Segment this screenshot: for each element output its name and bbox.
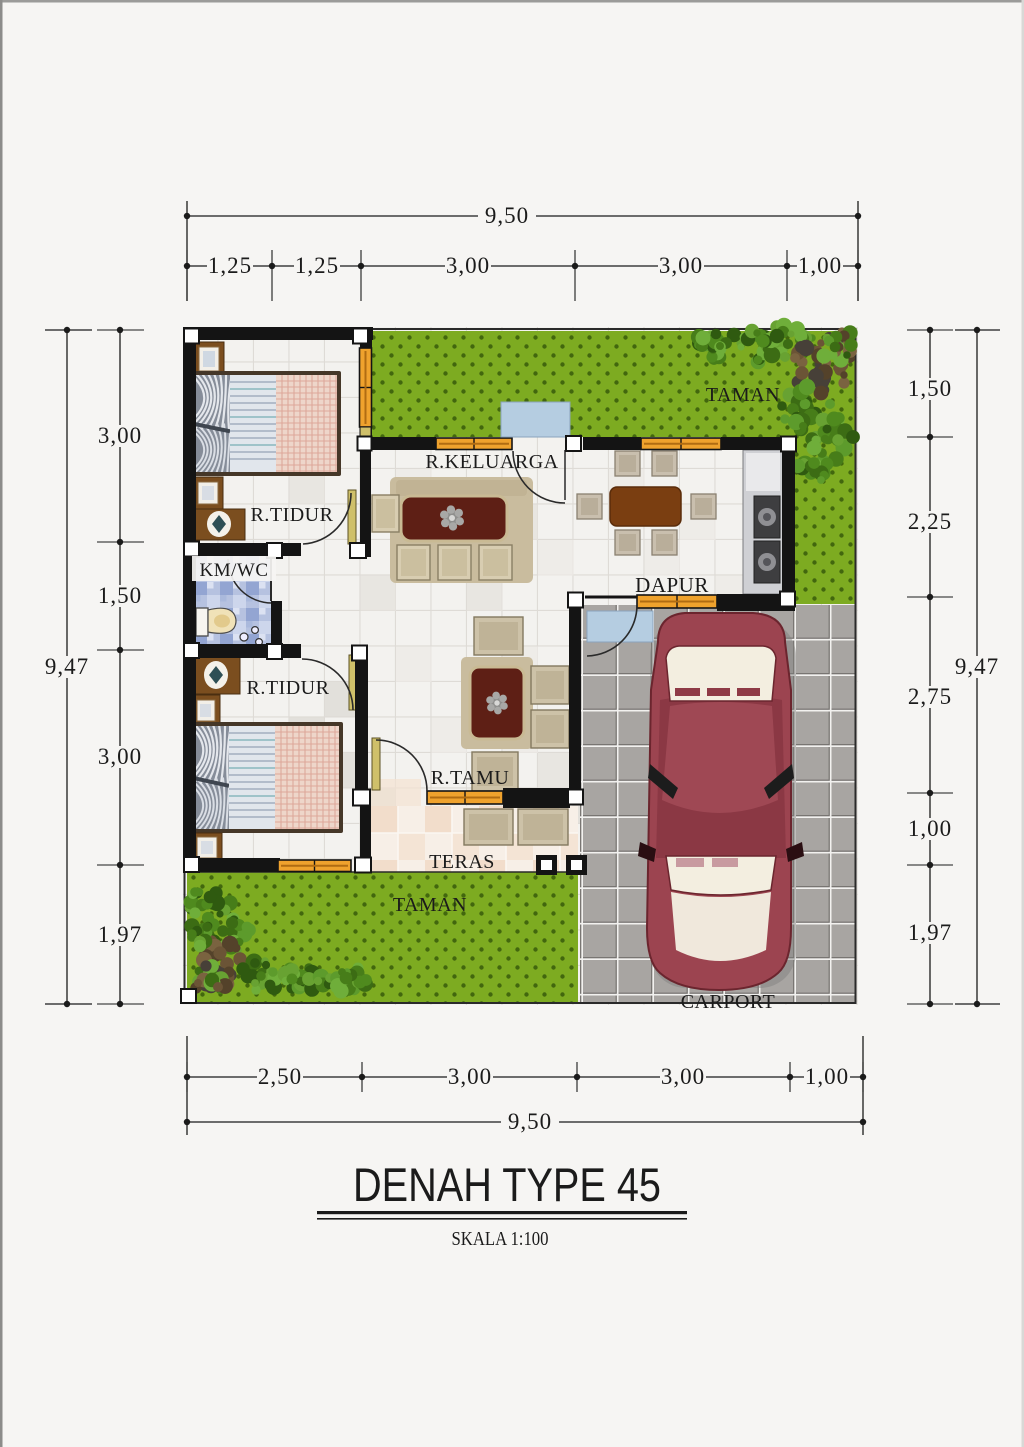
svg-text:TAMAN: TAMAN: [706, 384, 780, 406]
svg-text:CARPORT: CARPORT: [681, 991, 776, 1013]
svg-text:TERAS: TERAS: [429, 851, 495, 873]
svg-text:3,00: 3,00: [98, 423, 142, 448]
svg-text:3,00: 3,00: [448, 1064, 492, 1089]
svg-text:9,50: 9,50: [508, 1109, 552, 1134]
svg-text:2,50: 2,50: [258, 1064, 302, 1089]
svg-text:R.KELUARGA: R.KELUARGA: [425, 451, 558, 473]
svg-text:1,00: 1,00: [908, 816, 952, 841]
svg-text:1,00: 1,00: [805, 1064, 849, 1089]
svg-text:DENAH TYPE 45: DENAH TYPE 45: [353, 1158, 661, 1211]
svg-text:9,47: 9,47: [45, 654, 89, 679]
svg-text:3,00: 3,00: [659, 253, 703, 278]
svg-text:3,00: 3,00: [98, 744, 142, 769]
svg-text:9,47: 9,47: [955, 654, 999, 679]
svg-text:R.TAMU: R.TAMU: [431, 767, 510, 789]
svg-text:1,97: 1,97: [908, 920, 952, 945]
svg-text:DAPUR: DAPUR: [635, 573, 709, 597]
svg-text:1,25: 1,25: [208, 253, 252, 278]
svg-text:R.TIDUR: R.TIDUR: [247, 677, 330, 699]
svg-text:1,50: 1,50: [98, 583, 142, 608]
svg-text:1,97: 1,97: [98, 922, 142, 947]
svg-text:SKALA 1:100: SKALA 1:100: [452, 1228, 549, 1250]
svg-text:TAMAN: TAMAN: [393, 894, 467, 916]
svg-text:1,25: 1,25: [295, 253, 339, 278]
svg-text:1,50: 1,50: [908, 376, 952, 401]
svg-text:R.TIDUR: R.TIDUR: [251, 504, 334, 526]
svg-text:2,75: 2,75: [908, 684, 952, 709]
svg-text:3,00: 3,00: [661, 1064, 705, 1089]
svg-text:KM/WC: KM/WC: [200, 560, 269, 581]
svg-text:1,00: 1,00: [798, 253, 842, 278]
svg-text:9,50: 9,50: [485, 203, 529, 228]
svg-text:3,00: 3,00: [446, 253, 490, 278]
svg-text:2,25: 2,25: [908, 509, 952, 534]
